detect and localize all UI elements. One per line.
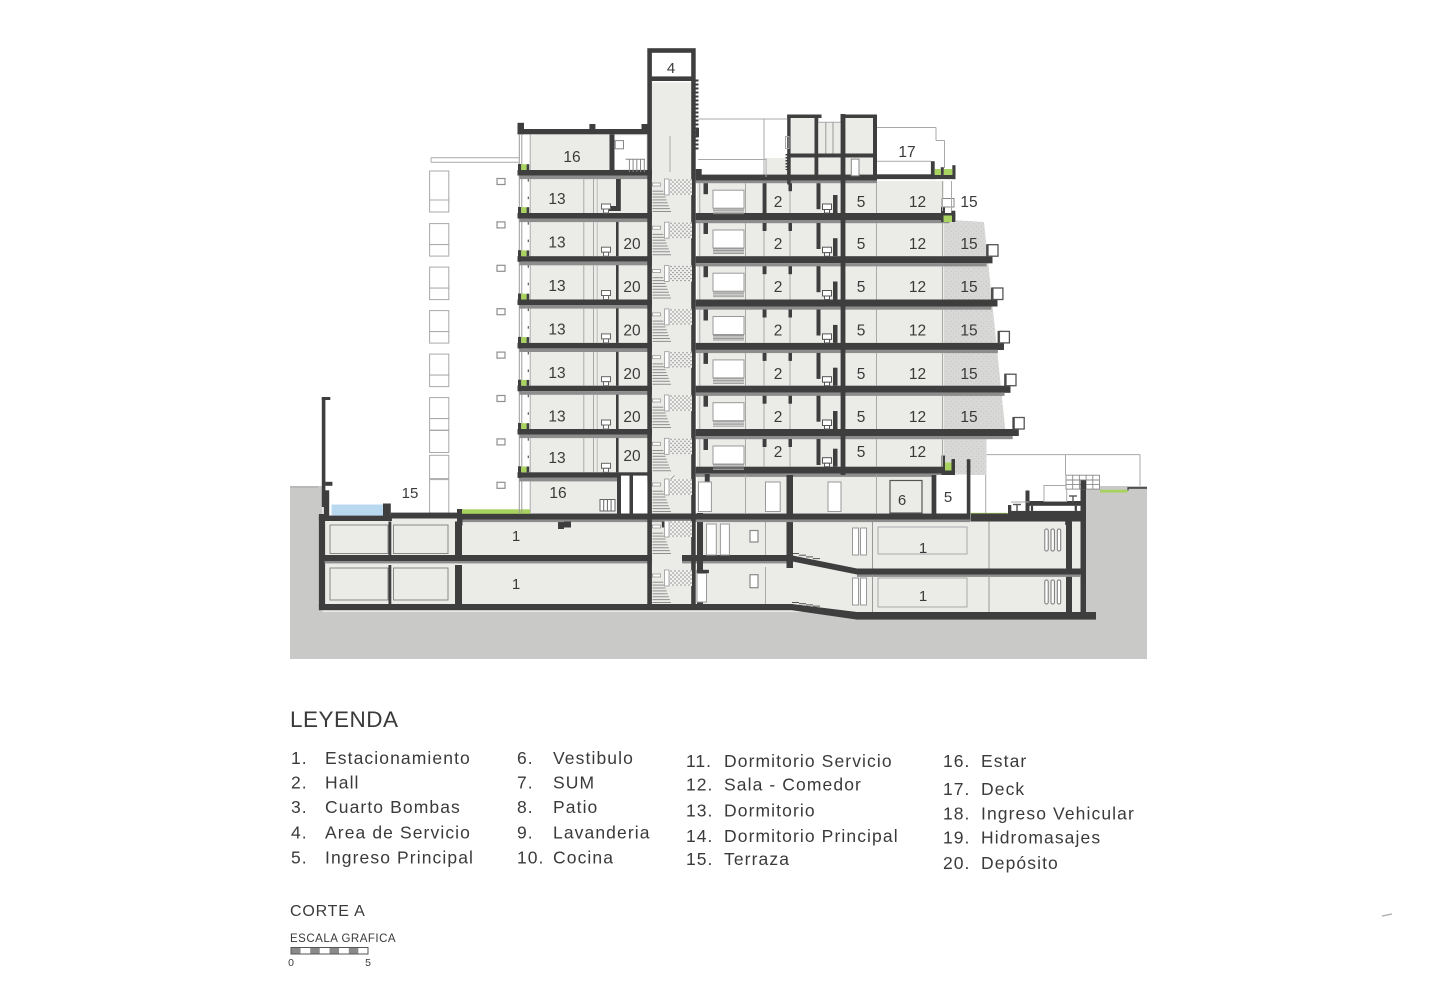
- svg-text:8.: 8.: [517, 797, 534, 817]
- svg-text:6: 6: [898, 492, 906, 509]
- svg-text:20: 20: [623, 236, 641, 253]
- svg-text:12: 12: [909, 194, 926, 211]
- svg-text:2: 2: [774, 444, 783, 461]
- svg-text:15: 15: [402, 485, 419, 502]
- svg-text:Lavanderia: Lavanderia: [553, 823, 651, 843]
- svg-text:5: 5: [857, 236, 866, 253]
- svg-text:12: 12: [909, 366, 926, 383]
- svg-text:Dormitorio: Dormitorio: [724, 801, 816, 821]
- svg-text:11.: 11.: [686, 751, 712, 771]
- svg-text:16: 16: [563, 149, 580, 166]
- svg-text:6.: 6.: [517, 748, 534, 768]
- svg-text:12.: 12.: [686, 775, 713, 795]
- svg-text:15: 15: [960, 236, 977, 253]
- svg-text:ESCALA GRAFICA: ESCALA GRAFICA: [290, 933, 396, 945]
- svg-text:12: 12: [909, 323, 926, 340]
- svg-text:20.: 20.: [943, 853, 970, 873]
- svg-text:15: 15: [960, 279, 977, 296]
- svg-text:4.: 4.: [291, 823, 308, 843]
- svg-text:2.: 2.: [291, 773, 308, 793]
- svg-text:2: 2: [774, 279, 783, 296]
- svg-text:12: 12: [909, 279, 926, 296]
- svg-text:0: 0: [288, 957, 294, 969]
- svg-text:Ingreso Vehicular: Ingreso Vehicular: [981, 804, 1135, 824]
- svg-text:1: 1: [919, 588, 927, 605]
- svg-text:2: 2: [774, 236, 783, 253]
- svg-text:15: 15: [960, 323, 977, 340]
- svg-text:5: 5: [365, 957, 371, 969]
- svg-text:1: 1: [512, 528, 520, 545]
- svg-text:18.: 18.: [943, 804, 970, 824]
- svg-text:5: 5: [857, 194, 866, 211]
- svg-text:CORTE A: CORTE A: [290, 903, 366, 920]
- svg-text:2: 2: [774, 366, 783, 383]
- svg-text:Patio: Patio: [553, 797, 598, 817]
- svg-text:12: 12: [909, 444, 926, 461]
- svg-text:5: 5: [857, 444, 866, 461]
- svg-text:Sala - Comedor: Sala - Comedor: [724, 775, 862, 795]
- svg-text:20: 20: [623, 323, 641, 340]
- svg-text:LEYENDA: LEYENDA: [290, 707, 399, 732]
- svg-text:2: 2: [774, 409, 783, 426]
- svg-text:5: 5: [944, 489, 952, 506]
- svg-text:5: 5: [857, 409, 866, 426]
- svg-text:Hidromasajes: Hidromasajes: [981, 828, 1101, 848]
- svg-text:Estar: Estar: [981, 751, 1027, 771]
- svg-text:17.: 17.: [943, 779, 970, 799]
- svg-text:20: 20: [623, 448, 641, 465]
- svg-text:15: 15: [960, 409, 977, 426]
- svg-text:SUM: SUM: [553, 773, 595, 793]
- svg-text:Dormitorio Servicio: Dormitorio Servicio: [724, 751, 893, 771]
- svg-text:13: 13: [548, 365, 565, 382]
- svg-text:19.: 19.: [943, 828, 970, 848]
- svg-text:Hall: Hall: [325, 773, 360, 793]
- svg-text:12: 12: [909, 236, 926, 253]
- svg-text:Vestibulo: Vestibulo: [553, 748, 634, 768]
- svg-text:16: 16: [549, 485, 566, 502]
- svg-text:13: 13: [548, 450, 565, 467]
- svg-text:9.: 9.: [517, 823, 534, 843]
- svg-text:4: 4: [667, 60, 675, 77]
- svg-text:12: 12: [909, 409, 926, 426]
- svg-text:Ingreso Principal: Ingreso Principal: [325, 848, 474, 868]
- svg-text:20: 20: [623, 366, 641, 383]
- svg-text:15.: 15.: [686, 849, 713, 869]
- svg-text:13: 13: [548, 235, 565, 252]
- svg-text:2: 2: [774, 194, 783, 211]
- svg-text:10.: 10.: [517, 848, 544, 868]
- svg-text:13.: 13.: [686, 801, 713, 821]
- svg-text:Dormitorio Principal: Dormitorio Principal: [724, 826, 899, 846]
- svg-text:15: 15: [960, 194, 977, 211]
- svg-text:13: 13: [548, 409, 565, 426]
- svg-text:20: 20: [623, 409, 641, 426]
- svg-text:14.: 14.: [686, 826, 713, 846]
- svg-text:5.: 5.: [291, 848, 308, 868]
- svg-text:13: 13: [548, 322, 565, 339]
- svg-text:1: 1: [919, 540, 927, 557]
- svg-text:17: 17: [898, 144, 915, 161]
- svg-text:Terraza: Terraza: [724, 849, 790, 869]
- svg-text:Estacionamiento: Estacionamiento: [325, 748, 471, 768]
- svg-text:Area de Servicio: Area de Servicio: [325, 823, 471, 843]
- svg-text:Deck: Deck: [981, 779, 1025, 799]
- svg-text:5: 5: [857, 366, 866, 383]
- svg-text:15: 15: [960, 366, 977, 383]
- svg-text:5: 5: [857, 323, 866, 340]
- svg-text:3.: 3.: [291, 797, 308, 817]
- svg-text:20: 20: [623, 279, 641, 296]
- svg-text:2: 2: [774, 323, 783, 340]
- svg-text:Depósito: Depósito: [981, 853, 1059, 873]
- svg-text:5: 5: [857, 279, 866, 296]
- svg-text:16.: 16.: [943, 751, 970, 771]
- svg-text:Cuarto Bombas: Cuarto Bombas: [325, 797, 461, 817]
- svg-text:1: 1: [512, 576, 520, 593]
- svg-text:1.: 1.: [291, 748, 308, 768]
- svg-text:13: 13: [548, 278, 565, 295]
- svg-text:Cocina: Cocina: [553, 848, 614, 868]
- svg-text:13: 13: [548, 191, 565, 208]
- svg-text:7.: 7.: [517, 773, 534, 793]
